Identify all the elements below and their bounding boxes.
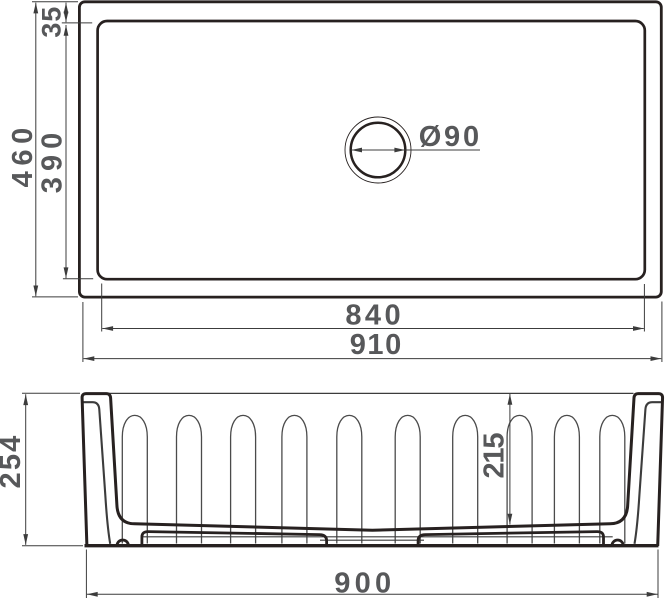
svg-text:900: 900 — [334, 568, 395, 600]
svg-text:215: 215 — [479, 433, 511, 479]
svg-text:254: 254 — [0, 434, 27, 489]
svg-text:35: 35 — [37, 6, 67, 38]
svg-text:840: 840 — [345, 300, 404, 332]
svg-text:390: 390 — [36, 127, 68, 193]
svg-text:460: 460 — [7, 122, 39, 187]
svg-text:910: 910 — [350, 329, 403, 361]
svg-text:Ø90: Ø90 — [419, 121, 482, 153]
